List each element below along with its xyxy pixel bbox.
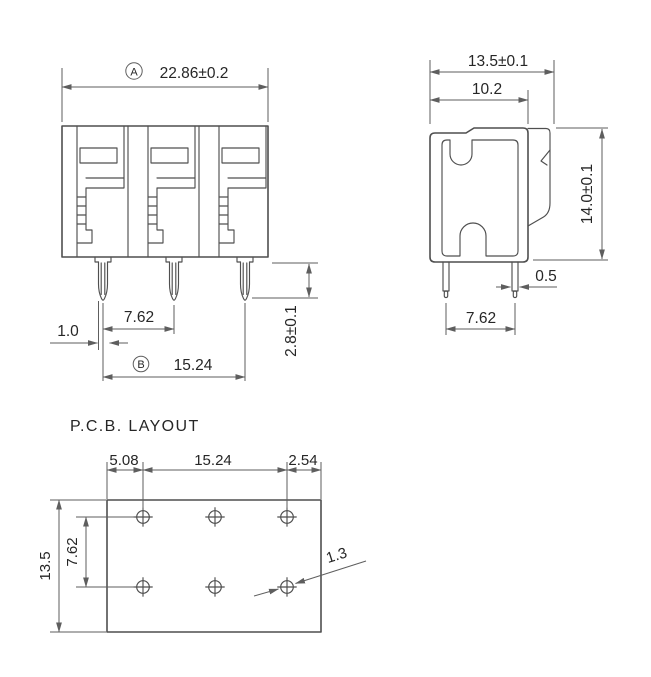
side-pin-left (443, 262, 449, 298)
dim-label-body-depth: 10.2 (472, 81, 502, 98)
solder-hole (206, 578, 225, 597)
dim-label-edge-to-hole: 5.08 (109, 452, 138, 469)
dim-label-total-height: 14.0±0.1 (579, 164, 596, 224)
side-view-dimensions: 13.5±0.1 10.2 14.0±0.1 0.5 7.62 (430, 53, 608, 335)
dim-label-pin-pitch: 7.62 (124, 309, 154, 326)
terminal-unit-3 (219, 126, 266, 300)
wire-cavity-outline (442, 140, 518, 256)
leader-hole-diameter-left (254, 589, 279, 596)
pcb-layout: P.C.B. LAYOUT 5.08 15.24 2.54 (37, 418, 366, 632)
dim-label-hole-to-edge: 2.54 (288, 452, 317, 469)
pcb-layout-title: P.C.B. LAYOUT (70, 418, 200, 435)
solder-hole (134, 508, 153, 527)
dim-label-pin-width: 0.5 (535, 268, 557, 285)
datum-b-label: B (137, 359, 144, 371)
side-body-outline (430, 128, 528, 262)
front-view: A 22.86±0.2 7.62 1.0 B 15.24 2.8±0.1 (50, 63, 318, 381)
dim-label-row-pitch: 7.62 (64, 537, 81, 566)
dim-label-side-pin-pitch: 7.62 (466, 310, 496, 327)
solder-hole (278, 578, 297, 597)
dim-label-total-width: 22.86±0.2 (160, 65, 229, 82)
drawing-page: A 22.86±0.2 7.62 1.0 B 15.24 2.8±0.1 (0, 0, 651, 677)
front-view-dimensions: A 22.86±0.2 7.62 1.0 B 15.24 2.8±0.1 (50, 63, 318, 381)
dim-label-hole-span: 15.24 (194, 452, 232, 469)
side-pin-right (512, 262, 518, 298)
front-body-outline (62, 126, 268, 257)
dim-label-outer-pin-span: 15.24 (174, 357, 213, 374)
rear-latch-notch (541, 150, 550, 165)
terminal-unit-2 (148, 126, 195, 300)
solder-hole (278, 508, 297, 527)
rear-housing-outline (528, 129, 550, 227)
side-view: 13.5±0.1 10.2 14.0±0.1 0.5 7.62 (430, 53, 608, 335)
dim-label-pin-thickness: 1.0 (57, 323, 79, 340)
side-view-body (430, 128, 550, 298)
pcb-board-outline (107, 500, 321, 632)
dim-label-total-depth: 13.5±0.1 (468, 53, 528, 70)
dim-label-board-height: 13.5 (37, 551, 54, 580)
pcb-dimensions: 5.08 15.24 2.54 13.5 7.62 1.3 (37, 452, 366, 632)
solder-hole (206, 508, 225, 527)
terminal-unit-1 (77, 126, 124, 300)
front-view-body (62, 126, 268, 300)
pcb-holes (134, 508, 297, 597)
datum-a-label: A (130, 67, 138, 79)
dim-label-pin-protrusion: 2.8±0.1 (283, 305, 300, 357)
solder-hole (134, 578, 153, 597)
dim-label-hole-diameter: 1.3 (324, 544, 349, 566)
technical-drawing-canvas: A 22.86±0.2 7.62 1.0 B 15.24 2.8±0.1 (0, 0, 651, 677)
